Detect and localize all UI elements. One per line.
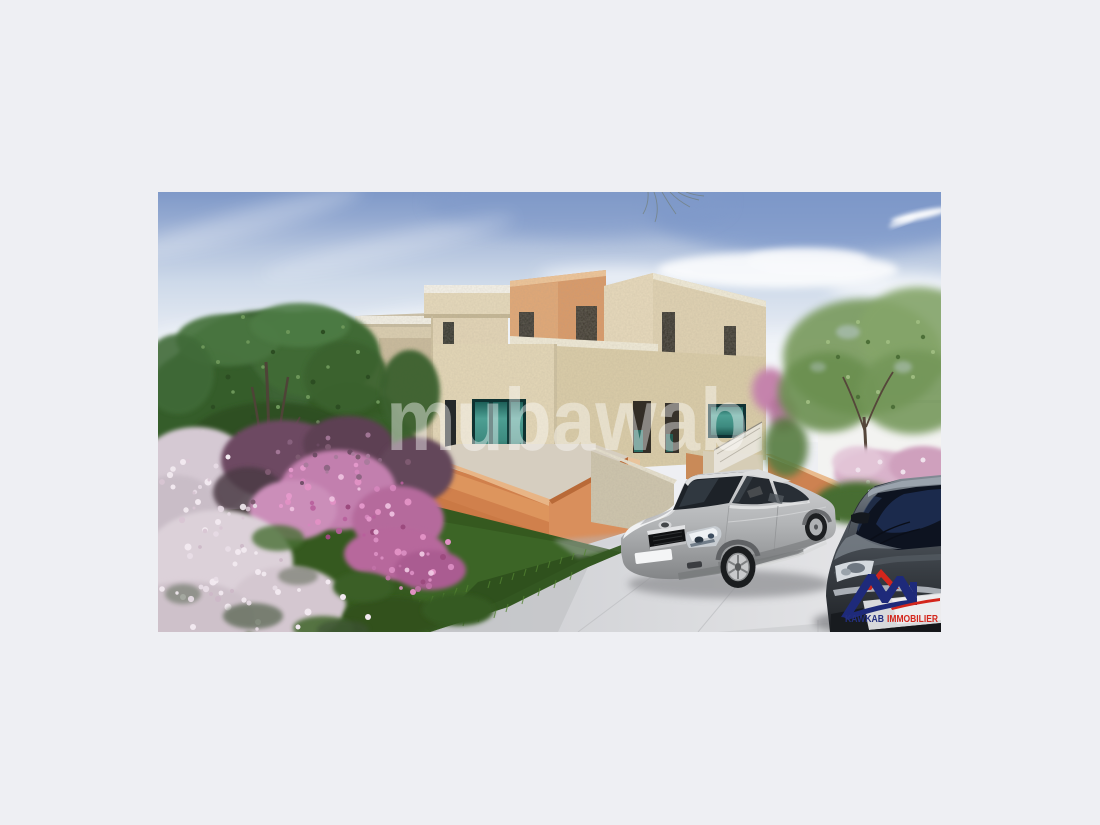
svg-text:mubawab: mubawab	[386, 370, 748, 469]
svg-text:KAWKAB: KAWKAB	[845, 613, 884, 625]
svg-text:IMMOBILIER: IMMOBILIER	[887, 613, 938, 625]
